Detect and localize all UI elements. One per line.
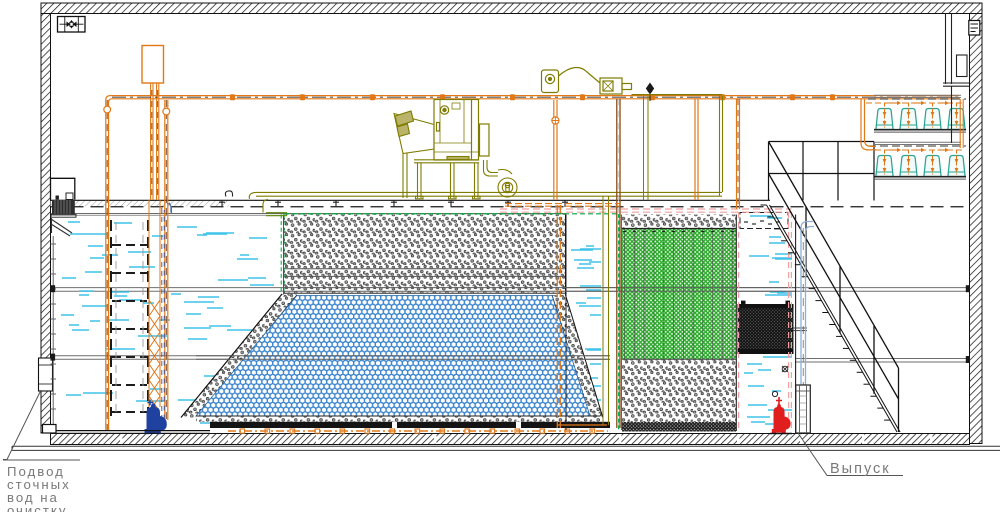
svg-text:очистку: очистку	[7, 503, 67, 512]
svg-text:Выпуск: Выпуск	[830, 461, 891, 477]
